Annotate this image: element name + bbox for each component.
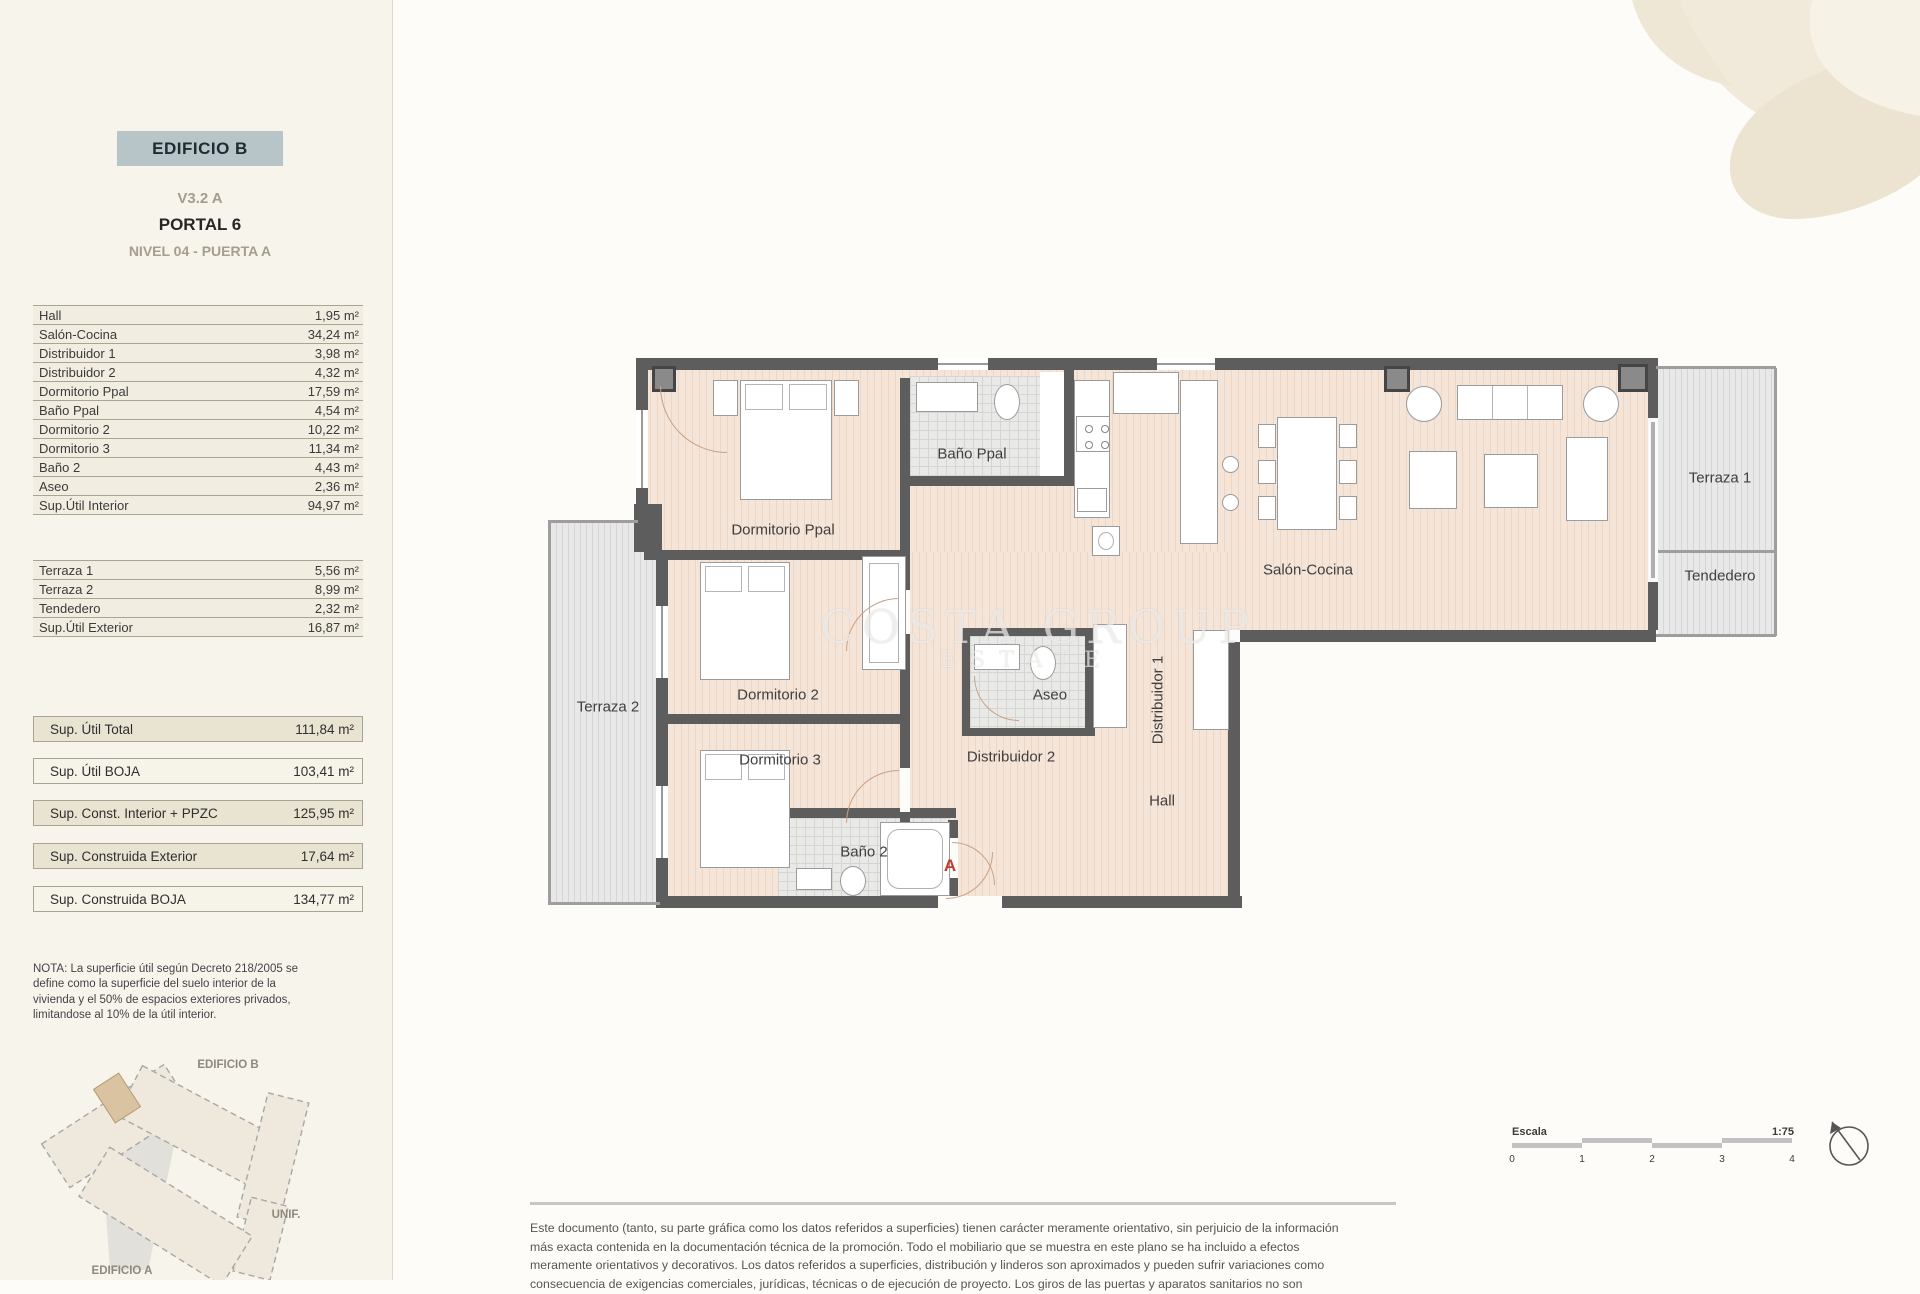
floor-plan: Dormitorio Ppal Baño Ppal Salón-Cocina T… <box>548 358 1777 913</box>
washbasin <box>974 644 1020 670</box>
wall-segment <box>1085 634 1093 736</box>
level-title: NIVEL 04 - PUERTA A <box>40 243 360 259</box>
chair <box>1258 460 1276 484</box>
unit-version: V3.2 A <box>40 190 360 207</box>
window <box>636 410 648 488</box>
table-row: Hall1,95 m² <box>33 305 363 324</box>
portal-title: PORTAL 6 <box>40 215 360 235</box>
room-label-terraza-1: Terraza 1 <box>1689 470 1752 487</box>
wall-segment <box>636 358 1658 370</box>
room-label-bano-ppal: Baño Ppal <box>937 446 1006 463</box>
disclaimer-text: Este documento (tanto, su parte gráfica … <box>530 1219 1430 1294</box>
sitemap-label-unif: UNIF. <box>272 1209 301 1221</box>
closet <box>1093 624 1127 728</box>
washbasin <box>796 868 832 890</box>
scale-label: Escala <box>1512 1126 1547 1138</box>
table-row: Dormitorio 210,22 m² <box>33 419 363 438</box>
tendedero-floor <box>1658 553 1774 634</box>
wall-segment <box>900 476 1072 486</box>
wall-segment <box>1656 366 1776 369</box>
side-table <box>1583 386 1619 422</box>
building-badge: EDIFICIO B <box>117 131 283 166</box>
stool <box>1222 494 1239 511</box>
window <box>656 786 668 858</box>
table-row: Terraza 28,99 m² <box>33 579 363 598</box>
dining-table <box>1277 417 1337 530</box>
coffee-table <box>1484 454 1538 508</box>
wall-segment <box>1648 582 1658 630</box>
table-row: Aseo2,36 m² <box>33 476 363 495</box>
side-sofa <box>1566 437 1608 521</box>
summary-bar: Sup. Útil BOJA103,41 m² <box>33 758 363 784</box>
toilet <box>1030 646 1056 680</box>
table-row: Terraza 15,56 m² <box>33 560 363 579</box>
room-label-dormitorio-2: Dormitorio 2 <box>737 687 819 704</box>
sitemap-label-edificio-b: EDIFICIO B <box>197 1059 258 1071</box>
disclaimer-divider <box>530 1202 1396 1205</box>
toilet <box>994 384 1020 420</box>
window <box>1157 358 1215 370</box>
chair <box>1339 460 1357 484</box>
wall-segment <box>668 714 906 724</box>
area-table-interior: Hall1,95 m²Salón-Cocina34,24 m²Distribui… <box>33 305 363 515</box>
kitchen-sink <box>1077 488 1107 512</box>
table-row: Baño 24,43 m² <box>33 457 363 476</box>
table-row: Dormitorio 311,34 m² <box>33 438 363 457</box>
wall-segment <box>1656 550 1776 553</box>
summary-bar: Sup. Construida Exterior17,64 m² <box>33 843 363 869</box>
panel-divider <box>392 0 393 1280</box>
bed <box>740 380 832 500</box>
kitchen-island <box>1180 380 1218 544</box>
table-row: Sup.Útil Interior94,97 m² <box>33 495 363 515</box>
sliding-door-glass <box>1651 422 1655 578</box>
wall-segment <box>962 634 970 736</box>
scale-segment <box>1652 1143 1722 1148</box>
wall-segment <box>962 628 1093 636</box>
chair <box>1258 496 1276 520</box>
scale-bar: Escala 1:75 01234 <box>1512 1126 1794 1172</box>
washbasin <box>916 382 978 412</box>
bed <box>700 562 790 680</box>
wall-segment <box>1064 370 1074 486</box>
stool <box>1222 456 1239 473</box>
wall-segment <box>1656 634 1776 637</box>
nightstand <box>834 380 859 416</box>
toilet <box>840 866 866 896</box>
sitemap-label-edificio-a: EDIFICIO A <box>92 1265 153 1277</box>
bathtub <box>880 822 950 896</box>
chair <box>1339 424 1357 448</box>
wall-segment <box>1774 368 1777 636</box>
wall-segment <box>550 520 638 523</box>
disclaimer-line: más exacta contenida en la documentación… <box>530 1238 1430 1257</box>
room-label-dormitorio-3: Dormitorio 3 <box>739 752 821 769</box>
window <box>656 606 668 678</box>
wall-segment <box>900 378 910 558</box>
sofa <box>1457 385 1563 420</box>
scale-segment <box>1722 1138 1792 1143</box>
closet <box>1193 630 1229 730</box>
terraza-1-floor <box>1658 369 1774 550</box>
wall-segment <box>962 728 1095 736</box>
kitchen-nook <box>1040 372 1064 478</box>
side-table <box>1406 386 1442 422</box>
table-row: Distribuidor 13,98 m² <box>33 343 363 362</box>
wall-segment <box>1228 642 1240 908</box>
floor-plan-sheet: { "header": { "building": "EDIFICIO B", … <box>0 0 1920 1280</box>
stove <box>1076 416 1110 452</box>
window <box>938 358 988 370</box>
info-panel: EDIFICIO B V3.2 A PORTAL 6 NIVEL 04 - PU… <box>0 0 392 1280</box>
kitchen-cabinet <box>1113 372 1179 414</box>
table-row: Tendedero2,32 m² <box>33 598 363 617</box>
table-row: Baño Ppal4,54 m² <box>33 400 363 419</box>
room-label-tendedero: Tendedero <box>1685 568 1756 585</box>
room-label-hall: Hall <box>1149 793 1175 810</box>
wall-segment <box>1648 370 1658 418</box>
room-label-dormitorio-ppal: Dormitorio Ppal <box>731 522 834 539</box>
scale-segment <box>1582 1138 1652 1143</box>
wall-segment <box>548 520 551 904</box>
chair <box>1339 496 1357 520</box>
wall-segment <box>1240 630 1656 642</box>
area-table-exterior: Terraza 15,56 m²Terraza 28,99 m²Tendeder… <box>33 560 363 637</box>
room-label-distribuidor-1: Distribuidor 1 <box>1150 656 1167 744</box>
summary-bar: Sup. Const. Interior + PPZC125,95 m² <box>33 800 363 826</box>
scale-ratio: 1:75 <box>1772 1126 1794 1138</box>
table-row: Distribuidor 24,32 m² <box>33 362 363 381</box>
armchair <box>1409 451 1457 509</box>
room-label-aseo: Aseo <box>1033 687 1067 704</box>
brand-swirl-logo <box>1260 0 1920 290</box>
table-row: Sup.Útil Exterior16,87 m² <box>33 617 363 637</box>
wall-segment <box>548 902 660 905</box>
structural-column <box>1384 366 1410 392</box>
table-row: Salón-Cocina34,24 m² <box>33 324 363 343</box>
room-label-distribuidor-2: Distribuidor 2 <box>967 749 1055 766</box>
room-label-salon-cocina: Salón-Cocina <box>1263 562 1353 579</box>
room-label-bano-2: Baño 2 <box>840 844 888 861</box>
summary-bar: Sup. Útil Total111,84 m² <box>33 716 363 742</box>
scale-segment <box>1512 1143 1582 1148</box>
chair <box>1258 424 1276 448</box>
door-opening <box>900 768 910 812</box>
table-row: Dormitorio Ppal17,59 m² <box>33 381 363 400</box>
summary-bar: Sup. Construida BOJA134,77 m² <box>33 886 363 912</box>
nota-text: NOTA: La superficie útil según Decreto 2… <box>33 962 333 1023</box>
disclaimer-line: consecuencia de exigencias comerciales, … <box>530 1275 1430 1294</box>
structural-column <box>1618 364 1648 392</box>
entrance-letter: A <box>944 856 956 876</box>
disclaimer-line: meramente orientativos y decorativos. Lo… <box>530 1256 1430 1275</box>
washing-machine <box>1092 526 1120 556</box>
north-compass-icon <box>1818 1112 1876 1172</box>
building-name: EDIFICIO B <box>152 139 248 159</box>
wall-segment <box>634 504 662 552</box>
room-label-terraza-2: Terraza 2 <box>577 699 640 716</box>
site-location-map: EDIFICIO B UNIF. EDIFICIO A <box>22 1038 312 1280</box>
disclaimer-line: Este documento (tanto, su parte gráfica … <box>530 1219 1430 1238</box>
